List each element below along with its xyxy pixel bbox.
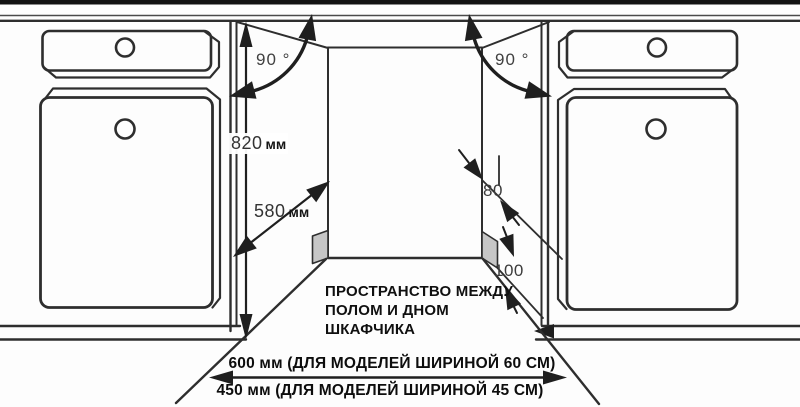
left-drawer (43, 31, 220, 78)
recess-height-label: 100 (494, 261, 524, 281)
width-60-label: 600 мм (ДЛЯ МОДЕЛЕЙ ШИРИНОЙ 60 СМ) (162, 355, 622, 373)
depth-dimension-label: 580 мм (252, 201, 311, 222)
angle-label-left: 90 ° (256, 50, 290, 70)
depth-unit: мм (289, 204, 310, 220)
height-dimension-label: 820 мм (229, 133, 288, 154)
height-value: 820 (231, 133, 263, 154)
niche (176, 22, 599, 404)
floor-gap-note-line3: ШКАФЧИКА (325, 320, 513, 339)
floor-gap-note: ПРОСТРАНСТВО МЕЖДУ ПОЛОМ И ДНОМ ШКАФЧИКА (325, 282, 513, 339)
right-cabinet (534, 22, 800, 340)
installation-diagram: 90 ° 90 ° 820 мм 580 мм 80 100 ПРОСТРАНС… (0, 0, 800, 407)
floor-gap-note-line2: ПОЛОМ И ДНОМ (325, 301, 513, 320)
left-door (41, 89, 221, 308)
angle-label-right: 90 ° (495, 50, 529, 70)
right-drawer (559, 31, 737, 78)
width-45-label: 450 мм (ДЛЯ МОДЕЛЕЙ ШИРИНОЙ 45 СМ) (150, 382, 610, 400)
countertop (0, 0, 800, 21)
left-door-knob (116, 120, 135, 139)
height-unit: мм (266, 136, 287, 152)
depth-value: 580 (254, 201, 286, 222)
left-cabinet (0, 22, 246, 340)
recess-depth-label: 80 (483, 181, 503, 201)
floor-gap-note-line1: ПРОСТРАНСТВО МЕЖДУ (325, 282, 513, 301)
right-drawer-knob (648, 39, 666, 57)
right-door (558, 89, 737, 310)
right-door-knob (647, 120, 666, 139)
diagram-linework (0, 0, 800, 407)
left-drawer-knob (116, 39, 134, 57)
dim-height-820 (240, 22, 253, 340)
